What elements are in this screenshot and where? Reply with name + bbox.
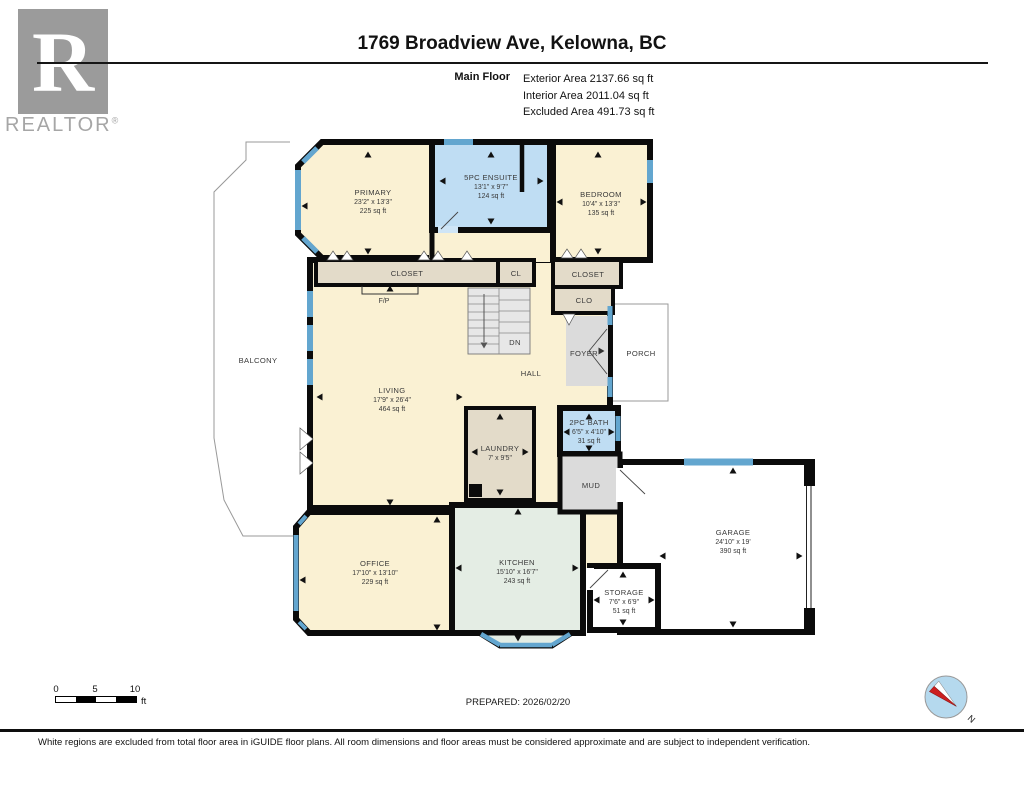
compass-north-label: N xyxy=(966,713,976,725)
room-area-kitchen: 243 sq ft xyxy=(504,578,531,585)
scale-bar: 0 5 10 ft xyxy=(53,684,173,714)
room-label-primary: PRIMARY xyxy=(355,188,392,197)
upper-hall-patch xyxy=(429,228,553,262)
room-dims-storage: 7'6" x 6'9" xyxy=(609,599,640,606)
scale-segment xyxy=(116,697,136,702)
floor-plan: PRIMARY 23'2" x 13'3" 225 sq ft 5PC ENSU… xyxy=(0,0,1024,791)
room-label-closet-bedroom: CLOSET xyxy=(572,270,604,279)
scale-tick-5: 5 xyxy=(92,684,97,695)
room-label-laundry: LAUNDRY xyxy=(481,444,520,453)
balcony-area xyxy=(214,142,305,536)
room-label-closet-primary: CLOSET xyxy=(391,269,423,278)
prepared-date: PREPARED: 2026/02/20 xyxy=(412,697,624,708)
room-dims-bath: 6'5" x 4'10" xyxy=(572,429,607,436)
room-label-office: OFFICE xyxy=(360,559,390,568)
room-dims-laundry: 7' x 9'5" xyxy=(488,455,512,462)
room-label-closet-cl: CL xyxy=(511,269,521,278)
wall xyxy=(804,608,815,632)
room-label-ensuite: 5PC ENSUITE xyxy=(464,173,518,182)
door-opening xyxy=(586,568,594,590)
realtor-wordmark: REALTOR® xyxy=(5,114,140,137)
room-dims-kitchen: 15'10" x 16'7" xyxy=(496,569,538,576)
room-label-closet-clo: CLO xyxy=(576,296,593,305)
room-dims-office: 17'10" x 13'10" xyxy=(352,570,398,577)
room-area-office: 229 sq ft xyxy=(362,579,389,586)
room-label-mud: MUD xyxy=(582,481,601,490)
room-label-porch: PORCH xyxy=(626,349,655,358)
compass-icon: N xyxy=(920,671,976,727)
page-title: 1769 Broadview Ave, Kelowna, BC xyxy=(0,33,1024,55)
room-label-living: LIVING xyxy=(379,386,406,395)
room-area-storage: 51 sq ft xyxy=(613,608,636,615)
scale-unit: ft xyxy=(141,696,146,707)
room-label-bath: 2PC BATH xyxy=(569,418,608,427)
room-label-garage: GARAGE xyxy=(716,528,751,537)
room-dims-ensuite: 13'1" x 9'7" xyxy=(474,184,509,191)
footer-divider xyxy=(0,729,1024,732)
scale-segment xyxy=(96,697,116,702)
door-opening xyxy=(438,226,458,233)
room-area-ensuite: 124 sq ft xyxy=(478,193,505,200)
scale-segment xyxy=(76,697,96,702)
fireplace-label: F/P xyxy=(379,298,390,305)
room-dims-garage: 24'10" x 19' xyxy=(715,539,750,546)
wall xyxy=(804,462,815,486)
scale-segment xyxy=(56,697,76,702)
title-divider xyxy=(37,62,988,64)
room-dims-living: 17'9" x 26'4" xyxy=(373,397,411,404)
stairs-down-label: DN xyxy=(509,338,521,347)
room-label-kitchen: KITCHEN xyxy=(499,558,535,567)
room-area-primary: 225 sq ft xyxy=(360,208,387,215)
laundry-fixture xyxy=(469,484,482,497)
disclaimer-text: White regions are excluded from total fl… xyxy=(38,737,998,748)
scale-tick-0: 0 xyxy=(53,684,58,695)
scale-tick-10: 10 xyxy=(130,684,141,695)
room-label-bedroom: BEDROOM xyxy=(580,190,622,199)
room-area-living: 464 sq ft xyxy=(379,406,406,413)
room-dims-bedroom: 10'4" x 13'3" xyxy=(582,201,620,208)
room-label-foyer: FOYER xyxy=(570,349,598,358)
room-area-bedroom: 135 sq ft xyxy=(588,210,615,217)
room-area-garage: 390 sq ft xyxy=(720,548,747,555)
room-dims-primary: 23'2" x 13'3" xyxy=(354,199,392,206)
room-area-bath: 31 sq ft xyxy=(578,438,601,445)
room-label-hall: HALL xyxy=(521,369,541,378)
registered-mark: ® xyxy=(112,115,121,125)
room-label-balcony: BALCONY xyxy=(239,356,278,365)
scale-bar-segments xyxy=(55,696,137,703)
room-label-storage: STORAGE xyxy=(604,588,643,597)
hall-to-garage xyxy=(586,508,622,568)
